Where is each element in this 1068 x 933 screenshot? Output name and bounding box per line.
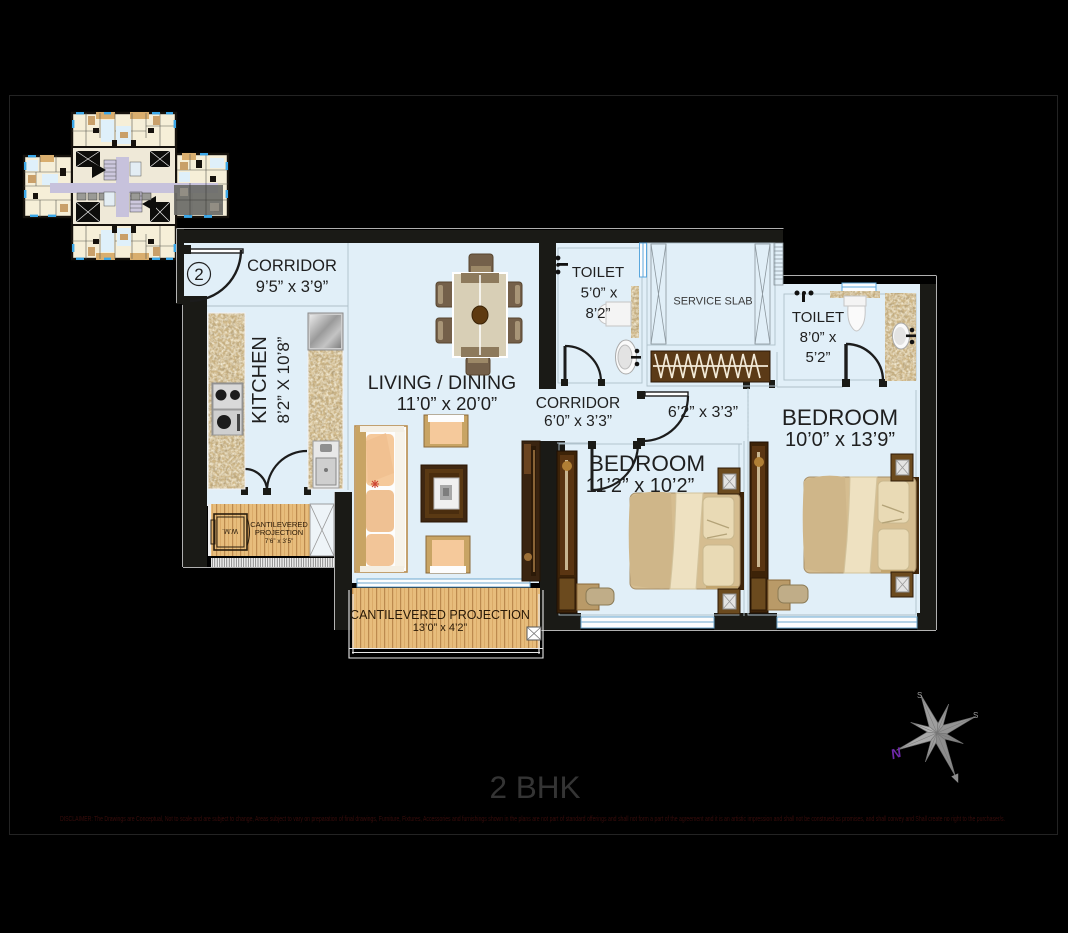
svg-text:2 BHK: 2 BHK	[489, 769, 580, 805]
svg-text:DISCLAIMER: The Drawings are C: DISCLAIMER: The Drawings are Conceptual,…	[60, 814, 1005, 823]
svg-text:W.M.: W.M.	[222, 527, 238, 534]
svg-text:S: S	[917, 691, 922, 700]
svg-text:9’5” x 3’9”: 9’5” x 3’9”	[256, 278, 328, 296]
svg-text:8’2” X 10’8”: 8’2” X 10’8”	[274, 336, 293, 423]
svg-text:5’2”: 5’2”	[805, 349, 830, 366]
svg-text:SERVICE SLAB: SERVICE SLAB	[673, 296, 752, 308]
svg-text:7’6” x 3’5”: 7’6” x 3’5”	[265, 538, 294, 545]
svg-text:2: 2	[194, 265, 203, 284]
svg-text:8’0” x: 8’0” x	[800, 329, 837, 346]
svg-text:11’0” x 20’0”: 11’0” x 20’0”	[397, 393, 497, 414]
svg-text:CORRIDOR: CORRIDOR	[247, 257, 337, 275]
svg-text:BEDROOM: BEDROOM	[782, 405, 898, 430]
svg-text:TOILET: TOILET	[792, 309, 844, 326]
svg-text:KITCHEN: KITCHEN	[249, 336, 271, 424]
svg-text:11’2” x 10’2”: 11’2” x 10’2”	[586, 475, 695, 497]
svg-text:10’0” x 13’9”: 10’0” x 13’9”	[785, 429, 895, 451]
svg-text:PROJECTION: PROJECTION	[255, 528, 303, 537]
svg-text:CANTILEVERED PROJECTION: CANTILEVERED PROJECTION	[350, 608, 530, 622]
svg-text:TOILET: TOILET	[572, 264, 624, 281]
svg-text:BEDROOM: BEDROOM	[589, 451, 705, 476]
svg-text:13’0” x 4’2”: 13’0” x 4’2”	[413, 622, 468, 634]
svg-text:8’2”: 8’2”	[585, 305, 610, 322]
svg-text:6’0” x 3’3”: 6’0” x 3’3”	[544, 413, 612, 430]
svg-text:6’2” x 3’3”: 6’2” x 3’3”	[668, 404, 738, 421]
svg-text:CORRIDOR: CORRIDOR	[536, 395, 620, 412]
svg-text:LIVING / DINING: LIVING / DINING	[368, 372, 516, 394]
svg-text:S: S	[973, 711, 978, 720]
svg-text:5’0” x: 5’0” x	[581, 285, 618, 302]
